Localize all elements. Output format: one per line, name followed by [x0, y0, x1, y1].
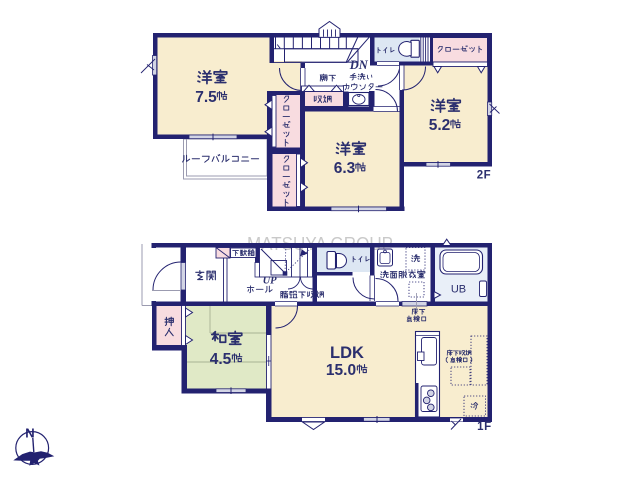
svg-text:1F: 1F: [477, 421, 492, 433]
svg-text:UP: UP: [263, 276, 278, 287]
svg-text:2F: 2F: [477, 170, 492, 182]
svg-text:4.5: 4.5: [210, 351, 232, 368]
svg-text:6.3: 6.3: [334, 160, 356, 177]
svg-text:DN: DN: [349, 58, 369, 72]
svg-text:UB: UB: [451, 284, 466, 296]
svg-text:LDK: LDK: [330, 344, 364, 362]
svg-text:7.5: 7.5: [195, 89, 217, 106]
svg-text:5.2: 5.2: [429, 117, 451, 134]
svg-text:15.0: 15.0: [326, 362, 356, 379]
